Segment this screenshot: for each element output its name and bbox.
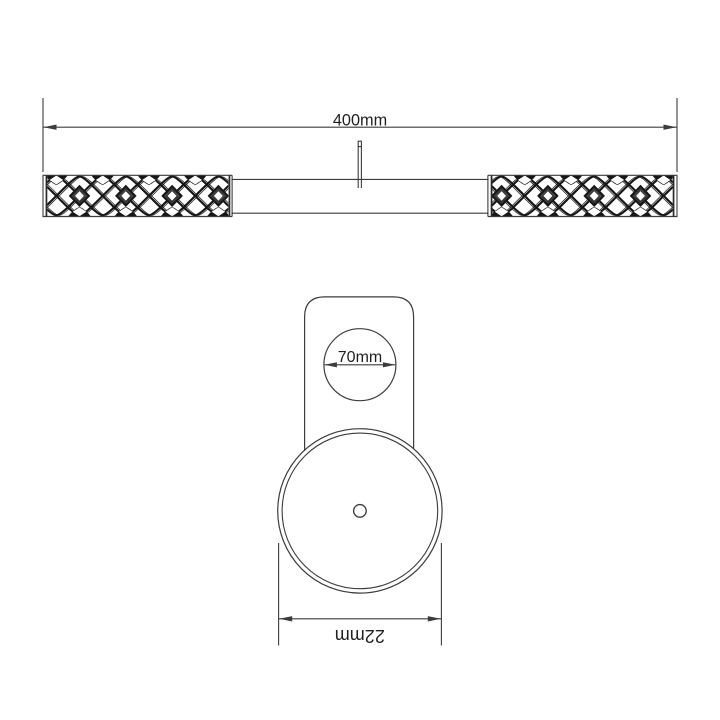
svg-text:22mm: 22mm (335, 626, 385, 646)
svg-text:400mm: 400mm (333, 111, 387, 129)
svg-text:70mm: 70mm (338, 349, 382, 366)
